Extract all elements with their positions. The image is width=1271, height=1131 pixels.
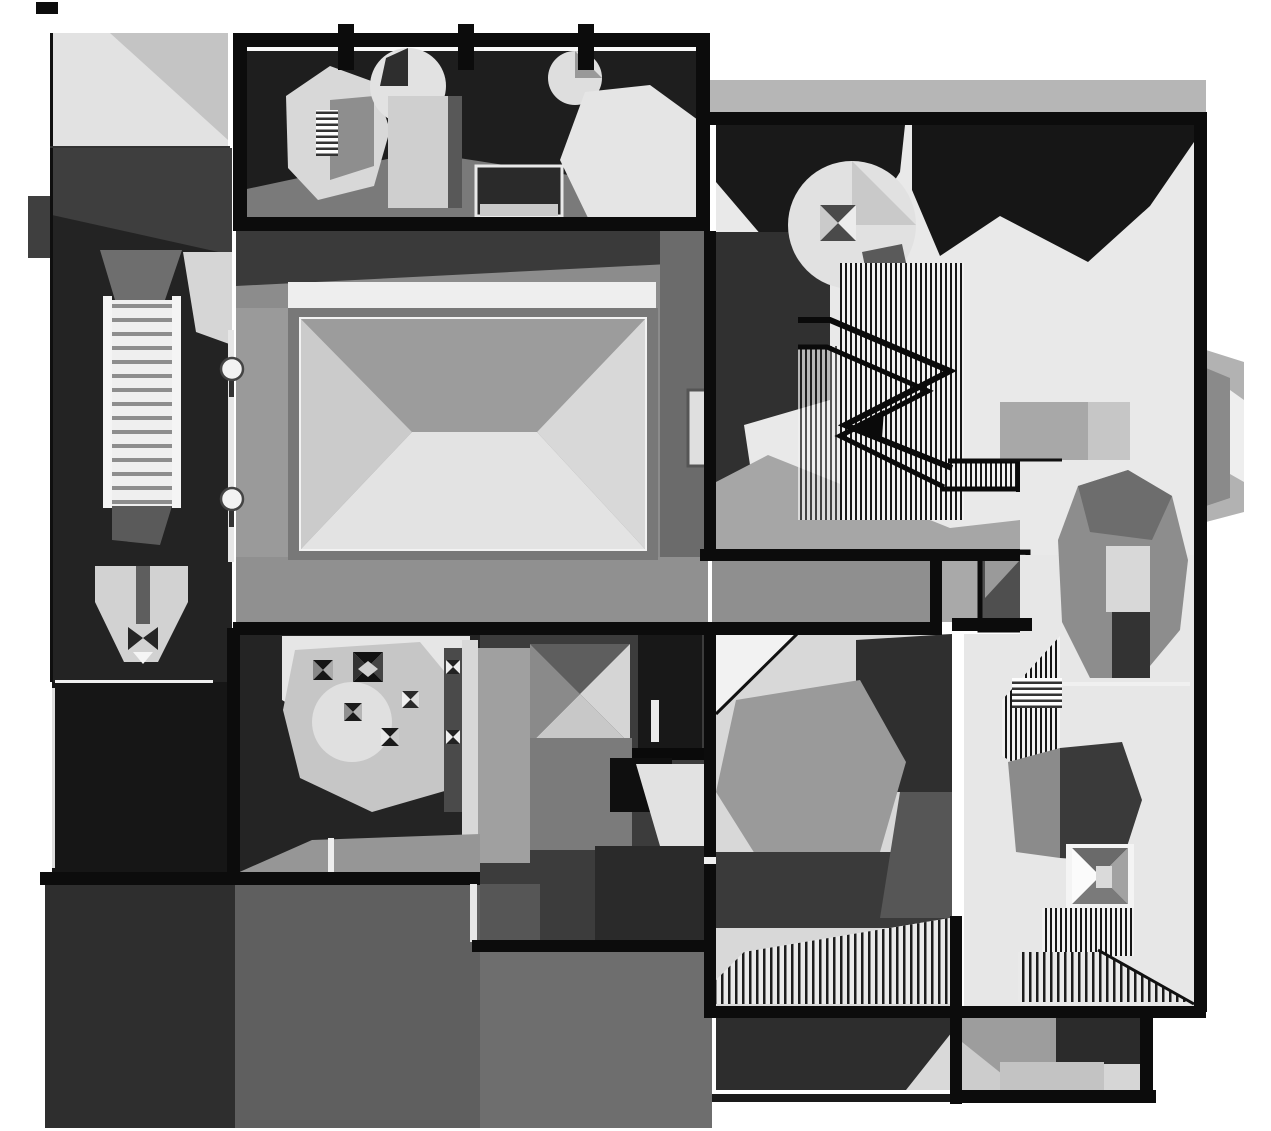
driveway-right (480, 952, 712, 1128)
wall-628 (233, 622, 940, 635)
door-tick-left (328, 838, 334, 874)
hatchB-stairs (1042, 908, 1134, 956)
wall-right-outer (1194, 112, 1207, 1012)
floor-plan (0, 0, 1271, 1131)
equals-patch (1012, 678, 1062, 708)
fireplace-body (638, 632, 702, 752)
top-room-right-poly (560, 85, 698, 222)
chimney-outside (28, 196, 52, 258)
chair-xbox-1 (313, 660, 333, 680)
window-right-wall (688, 390, 706, 466)
driveway-left (45, 885, 235, 1128)
octagon-underline (1060, 682, 1190, 686)
table-hip-square (530, 644, 630, 744)
door-hinge-circle-1 (221, 358, 243, 380)
wall-top-room-left (233, 33, 247, 231)
hall-xbox-symbol (820, 205, 856, 241)
wall-1098 (952, 1090, 1156, 1103)
door-hinge-tick-1 (229, 381, 234, 397)
bottom-left-line-h (55, 680, 213, 683)
eave-gray-band (710, 80, 1206, 113)
stair-rail-right (172, 296, 181, 508)
xsquare-notch (1096, 866, 1112, 888)
light-strip-left-of-column (462, 640, 478, 862)
pentagon-wing (1008, 748, 1060, 858)
br-strip (1000, 1062, 1104, 1090)
bedroom-top-light (288, 282, 656, 310)
wall-stub-938 (930, 555, 942, 635)
wall-710-door-gap (704, 857, 716, 864)
wall-710-lower (704, 622, 716, 857)
wall-hall-bottom (700, 549, 1020, 561)
gray-cols-1 (1000, 402, 1088, 460)
window-tick-2 (458, 24, 474, 70)
wall-945 (472, 940, 712, 952)
door-hinge-tick-2 (229, 511, 234, 527)
wall-710-upper (704, 231, 716, 561)
wall-878 (40, 872, 480, 885)
window-tick-3 (578, 24, 594, 70)
chair-xbox-4 (402, 691, 419, 708)
step-shade (480, 884, 540, 940)
wall-seg-952 (952, 618, 1032, 631)
left-outer-wall (50, 148, 53, 682)
funnel-fixture-stem (136, 566, 150, 624)
fixture-ladder (316, 110, 338, 156)
zstair-hatch-left (798, 346, 840, 520)
wall-1146-vert (1140, 1012, 1153, 1103)
cabinet-edge (448, 96, 462, 208)
wall-956-vert (950, 916, 962, 1104)
bottom-left-line-v (52, 688, 55, 868)
wall-top-room-right (696, 33, 710, 231)
bay-bump-inner (1206, 368, 1230, 506)
br-dark (1056, 1018, 1140, 1064)
chair-xbox-5 (381, 728, 399, 746)
bottom-left-room-bg (52, 682, 230, 878)
driveway-mid (235, 885, 480, 1128)
bc-lower-edge (712, 1094, 952, 1102)
zstair-hatch-main (840, 263, 964, 520)
corner-dash (36, 2, 58, 14)
wall-top-right (710, 112, 1206, 125)
zstair-hatch-end (952, 463, 1018, 488)
bench-shelf (480, 204, 558, 216)
window-tick-1 (338, 24, 354, 70)
gray-cols-2 (1088, 402, 1130, 460)
wall-710-lower2 (704, 864, 716, 1012)
nw-porch-left-wall (50, 33, 53, 148)
chair-xbox-3 (344, 703, 362, 721)
octagon-center (1106, 546, 1150, 612)
dark-bottom-patch (595, 846, 705, 940)
door-hinge-circle-2 (221, 488, 243, 510)
step-door-tick (470, 884, 477, 942)
dining-cluster-inner (312, 682, 392, 762)
jamb-bowtie-2 (446, 730, 460, 744)
wall-233-lower (227, 628, 240, 884)
fireplace-slit (651, 700, 659, 742)
bedroom-left-strip (236, 308, 288, 560)
tall-gray-column (478, 648, 530, 863)
octagon-dark (1112, 612, 1150, 678)
jamb-bowtie-1 (446, 660, 460, 674)
wall-top-room-bottom (233, 217, 710, 231)
below-bed-band (236, 557, 708, 622)
bay-bump-light (1230, 390, 1244, 482)
floor-plan-canvas (0, 0, 1271, 1131)
stair-treads (112, 300, 172, 506)
stair-rail-left (103, 296, 112, 508)
